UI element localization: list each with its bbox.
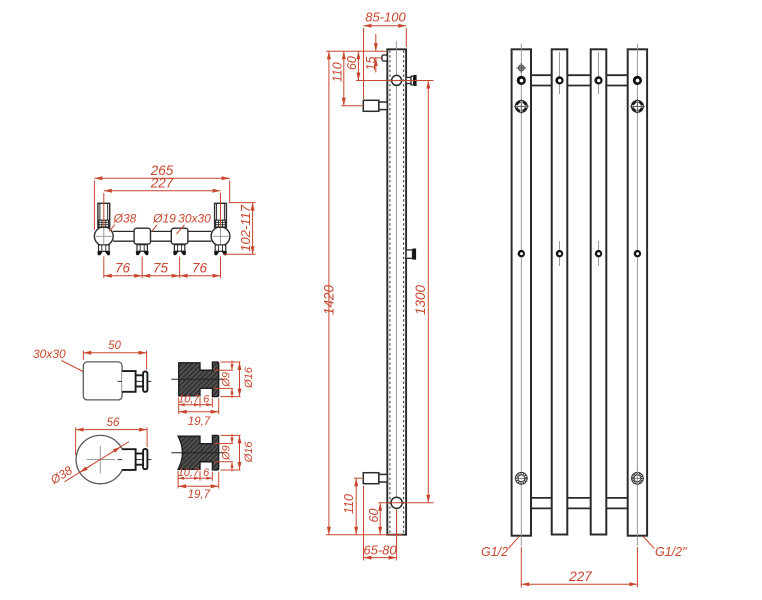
svg-text:Ø9: Ø9 [220,445,232,461]
svg-text:Ø19: Ø19 [152,212,176,226]
svg-text:60: 60 [345,56,359,70]
svg-text:102-117: 102-117 [238,204,253,252]
svg-text:G1/2: G1/2 [481,545,508,559]
svg-text:56: 56 [107,417,120,429]
svg-text:G1/2": G1/2" [655,545,687,559]
svg-text:1420: 1420 [322,284,337,315]
svg-text:227: 227 [568,569,592,584]
svg-text:10,7: 10,7 [178,467,200,479]
svg-text:6: 6 [203,394,210,406]
svg-text:75: 75 [153,261,169,276]
svg-text:19,7: 19,7 [188,416,211,428]
svg-text:110: 110 [330,62,344,82]
svg-text:1300: 1300 [413,284,428,315]
svg-text:19,7: 19,7 [188,489,211,501]
svg-text:6: 6 [203,467,210,479]
svg-text:110: 110 [342,494,356,514]
svg-text:15: 15 [364,57,378,71]
svg-text:Ø38: Ø38 [113,212,137,226]
svg-text:50: 50 [108,340,121,352]
svg-text:227: 227 [150,176,174,191]
svg-text:85-100: 85-100 [365,10,406,25]
svg-text:Ø16: Ø16 [243,441,255,464]
svg-text:76: 76 [192,261,208,276]
svg-text:65-80: 65-80 [363,543,397,558]
svg-text:Ø16: Ø16 [243,366,255,389]
svg-text:10,7: 10,7 [178,394,200,406]
svg-text:Ø9: Ø9 [220,372,232,388]
svg-text:30x30: 30x30 [178,212,211,226]
svg-text:60: 60 [367,509,381,523]
svg-text:30x30: 30x30 [33,347,66,361]
svg-text:76: 76 [115,261,131,276]
